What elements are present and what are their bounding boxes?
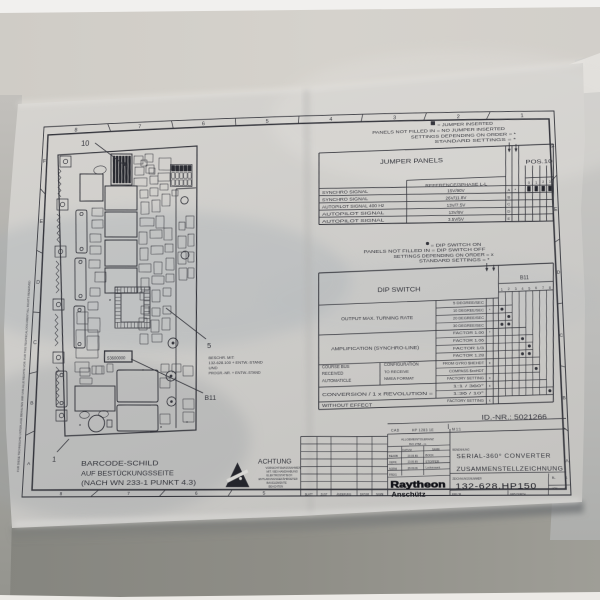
svg-text:1:36 / 10°: 1:36 / 10° bbox=[453, 391, 485, 396]
svg-text:6: 6 bbox=[195, 490, 199, 496]
svg-text:8: 8 bbox=[74, 127, 77, 133]
svg-text:5: 5 bbox=[263, 490, 266, 496]
svg-text:AUTOPILOT SIGNAL 400 Hz: AUTOPILOT SIGNAL 400 Hz bbox=[322, 203, 384, 210]
svg-text:D: D bbox=[36, 279, 41, 284]
svg-text:FACTOR 1.28: FACTOR 1.28 bbox=[453, 353, 484, 358]
svg-text:1: 1 bbox=[501, 287, 503, 291]
svg-text:3: 3 bbox=[393, 115, 396, 121]
svg-text:Raytheon: Raytheon bbox=[390, 479, 446, 490]
svg-text:Anschütz: Anschütz bbox=[391, 492, 425, 499]
svg-text:B: B bbox=[562, 395, 566, 401]
svg-text:13V/9V: 13V/9V bbox=[449, 209, 464, 215]
svg-text:NORM: NORM bbox=[389, 468, 397, 470]
svg-text:FACTORY SETTING: FACTORY SETTING bbox=[447, 398, 484, 403]
svg-text:x: x bbox=[489, 383, 491, 388]
svg-text:JUMPER PANELS: JUMPER PANELS bbox=[380, 158, 443, 166]
svg-text:FROM GYRO $HEHDT: FROM GYRO $HEHDT bbox=[443, 361, 485, 366]
svg-text:STANDARD SETTINGS = *: STANDARD SETTINGS = * bbox=[434, 136, 516, 144]
svg-text:CONFIGURATION: CONFIGURATION bbox=[384, 362, 419, 367]
svg-text:DATUM: DATUM bbox=[360, 493, 369, 497]
svg-text:NAME: NAME bbox=[376, 493, 384, 497]
svg-text:x: x bbox=[489, 376, 491, 381]
svg-text:BESCHR. MIT:: BESCHR. MIT: bbox=[208, 355, 234, 360]
svg-text:132-628.100 + ENTW.-STAND: 132-628.100 + ENTW.-STAND bbox=[208, 360, 263, 365]
svg-text:C: C bbox=[507, 202, 510, 206]
svg-text:STANDARD SETTINGS = *: STANDARD SETTINGS = * bbox=[419, 257, 490, 264]
svg-text:AUTOPILOT SIGNAL: AUTOPILOT SIGNAL bbox=[322, 217, 385, 224]
svg-text:AUTOPILOT SIGNAL: AUTOPILOT SIGNAL bbox=[322, 210, 385, 217]
svg-text:DATUM: DATUM bbox=[402, 449, 411, 453]
svg-text:C: C bbox=[33, 340, 38, 346]
svg-text:x: x bbox=[489, 361, 491, 366]
svg-text:SYNCHRO SIGNAL: SYNCHRO SIGNAL bbox=[322, 189, 369, 195]
svg-text:M 1:1: M 1:1 bbox=[452, 427, 461, 432]
svg-text:NAME: NAME bbox=[432, 448, 440, 452]
svg-text:1: 1 bbox=[520, 113, 524, 119]
svg-text:BLATT: BLATT bbox=[305, 493, 314, 497]
svg-text:BAUELEMENTE: BAUELEMENTE bbox=[267, 481, 288, 485]
svg-text:4: 4 bbox=[329, 117, 332, 123]
svg-text:D: D bbox=[507, 209, 510, 213]
svg-text:FACTOR 1/3: FACTOR 1/3 bbox=[453, 346, 484, 351]
svg-text:VON: VON bbox=[552, 488, 558, 490]
svg-text:BL.: BL. bbox=[552, 478, 556, 480]
svg-text:COMPASS $xxHDT: COMPASS $xxHDT bbox=[449, 368, 485, 373]
svg-text:1: 1 bbox=[535, 180, 537, 184]
svg-text:3: 3 bbox=[515, 287, 517, 291]
svg-text:x: x bbox=[489, 398, 491, 403]
svg-text:ÄNDERUNG: ÄNDERUNG bbox=[337, 493, 352, 497]
svg-text:8: 8 bbox=[549, 285, 551, 290]
svg-text:53600000: 53600000 bbox=[107, 356, 125, 361]
svg-text:FACTOR 1.06: FACTOR 1.06 bbox=[453, 338, 484, 343]
svg-text:AUF BESTÜCKUNGSSEITE: AUF BESTÜCKUNGSSEITE bbox=[81, 469, 174, 478]
svg-text:10: 10 bbox=[81, 140, 90, 148]
svg-text:132-628.HP150: 132-628.HP150 bbox=[455, 483, 537, 492]
svg-text:STOFFER: STOFFER bbox=[425, 460, 439, 464]
svg-text:SERIAL-360° CONVERTER: SERIAL-360° CONVERTER bbox=[456, 453, 551, 461]
svg-text:15V/90V: 15V/90V bbox=[447, 188, 465, 194]
svg-text:TO RECEIVE: TO RECEIVE bbox=[384, 369, 410, 374]
svg-text:A: A bbox=[507, 188, 510, 192]
svg-text:1: 1 bbox=[52, 456, 57, 464]
svg-text:B11: B11 bbox=[204, 394, 216, 402]
svg-text:Ludszuweit: Ludszuweit bbox=[425, 466, 440, 470]
svg-text:8: 8 bbox=[59, 491, 63, 497]
svg-text:23.05.89: 23.05.89 bbox=[408, 455, 419, 457]
svg-text:NMEA FORMAT: NMEA FORMAT bbox=[384, 376, 415, 381]
svg-text:BEACHTEN: BEACHTEN bbox=[269, 485, 284, 489]
svg-text:FREIG: FREIG bbox=[389, 475, 397, 477]
svg-text:BENENNUNG: BENENNUNG bbox=[452, 449, 469, 451]
svg-text:F: F bbox=[43, 159, 46, 165]
svg-text:30 DEGREE/SEC: 30 DEGREE/SEC bbox=[453, 323, 485, 328]
svg-text:7: 7 bbox=[542, 286, 544, 291]
svg-text:B: B bbox=[30, 400, 34, 406]
svg-text:1: 1 bbox=[566, 478, 568, 480]
svg-text:28.03.06: 28.03.06 bbox=[408, 468, 419, 470]
svg-text:DIP SWITCH: DIP SWITCH bbox=[377, 287, 420, 294]
svg-text:POS.10: POS.10 bbox=[525, 159, 552, 166]
svg-text:*: * bbox=[489, 308, 491, 313]
svg-text:CONVERSION / 1 x REVOLUTION: CONVERSION / 1 x REVOLUTION = bbox=[322, 391, 434, 397]
svg-text:2: 2 bbox=[508, 287, 510, 291]
svg-text:A: A bbox=[565, 457, 569, 463]
svg-text:5: 5 bbox=[266, 119, 269, 125]
svg-text:13V/7.5V: 13V/7.5V bbox=[447, 202, 466, 208]
svg-text:B: B bbox=[507, 195, 510, 199]
svg-text:AMPLIFICATION (SYNCHRO-LINE): AMPLIFICATION (SYNCHRO-LINE) bbox=[331, 344, 420, 351]
svg-text:BOCK: BOCK bbox=[425, 454, 434, 458]
svg-text:20 DEGREE/SEC: 20 DEGREE/SEC bbox=[453, 316, 485, 321]
svg-text:5: 5 bbox=[207, 342, 212, 350]
svg-text:AUTOMATICLE: AUTOMATICLE bbox=[322, 378, 352, 383]
svg-text:ERS.DURCH: ERS.DURCH bbox=[510, 494, 526, 496]
svg-text:5 DEGREE/SEC: 5 DEGREE/SEC bbox=[453, 300, 485, 305]
svg-text:6: 6 bbox=[202, 121, 205, 127]
svg-text:COURSE BUS: COURSE BUS bbox=[322, 365, 350, 370]
svg-text:RECEIVED: RECEIVED bbox=[322, 371, 344, 376]
svg-text:UND: UND bbox=[208, 366, 218, 371]
svg-text:*: * bbox=[514, 188, 516, 192]
svg-text:2: 2 bbox=[542, 180, 544, 184]
svg-text:ERF./JR: ERF./JR bbox=[452, 494, 462, 496]
svg-text:BARCODE-SCHILD: BARCODE-SCHILD bbox=[81, 461, 160, 468]
svg-text:HP 1283 1E: HP 1283 1E bbox=[412, 428, 434, 433]
svg-text:ACHTUNG: ACHTUNG bbox=[258, 458, 292, 466]
svg-text:CAD: CAD bbox=[391, 428, 400, 433]
svg-text:FACTOR 1.00: FACTOR 1.00 bbox=[453, 331, 484, 336]
svg-text:3.5V/5V: 3.5V/5V bbox=[448, 216, 464, 222]
svg-text:10 DEGREE/SEC: 10 DEGREE/SEC bbox=[453, 308, 485, 313]
svg-text:E: E bbox=[507, 217, 510, 221]
svg-text:4: 4 bbox=[521, 286, 523, 290]
svg-text:ZUST: ZUST bbox=[321, 494, 328, 496]
svg-text:(NACH WN 233-1 PUNKT 4.3): (NACH WN 233-1 PUNKT 4.3) bbox=[81, 480, 196, 488]
svg-text:7: 7 bbox=[127, 490, 131, 496]
svg-text:ALLGEMEINTOLERANZ: ALLGEMEINTOLERANZ bbox=[401, 437, 434, 442]
svg-text:GEPR.: GEPR. bbox=[389, 462, 398, 464]
svg-text:C: C bbox=[559, 332, 563, 338]
svg-text:FACTORY SETTING: FACTORY SETTING bbox=[447, 376, 484, 381]
svg-text:3: 3 bbox=[549, 180, 551, 184]
svg-text:5: 5 bbox=[528, 286, 530, 290]
svg-text:A: A bbox=[27, 460, 31, 466]
svg-text:BEARB: BEARB bbox=[389, 455, 399, 459]
svg-text:E: E bbox=[39, 219, 43, 225]
svg-text:*: * bbox=[489, 330, 491, 335]
svg-text:0: 0 bbox=[528, 181, 530, 185]
svg-text:23.05.89: 23.05.89 bbox=[408, 462, 419, 464]
svg-text:E: E bbox=[554, 206, 558, 211]
svg-text:ZUSAMMENSTELLZEICHNUNG: ZUSAMMENSTELLZEICHNUNG bbox=[456, 466, 563, 474]
svg-text:B11: B11 bbox=[520, 275, 530, 281]
svg-text:PROGR.-NR. + ENTW.-STAND: PROGR.-NR. + ENTW.-STAND bbox=[208, 371, 261, 376]
svg-text:1:1 / 360°: 1:1 / 360° bbox=[453, 383, 485, 388]
svg-text:WITHOUT EFFECT: WITHOUT EFFECT bbox=[322, 403, 373, 408]
svg-text:SYNCHRO SIGNAL: SYNCHRO SIGNAL bbox=[322, 196, 369, 202]
svg-text:6: 6 bbox=[535, 286, 537, 290]
svg-text:OUTPUT MAX. TURNING RATE: OUTPUT MAX. TURNING RATE bbox=[341, 314, 413, 321]
svg-text:ZEICHNUNGSNUMMER: ZEICHNUNGSNUMMER bbox=[452, 478, 482, 481]
svg-text:7: 7 bbox=[138, 124, 141, 130]
svg-text:26V/11.8V: 26V/11.8V bbox=[445, 195, 466, 201]
svg-text:2: 2 bbox=[457, 114, 460, 120]
